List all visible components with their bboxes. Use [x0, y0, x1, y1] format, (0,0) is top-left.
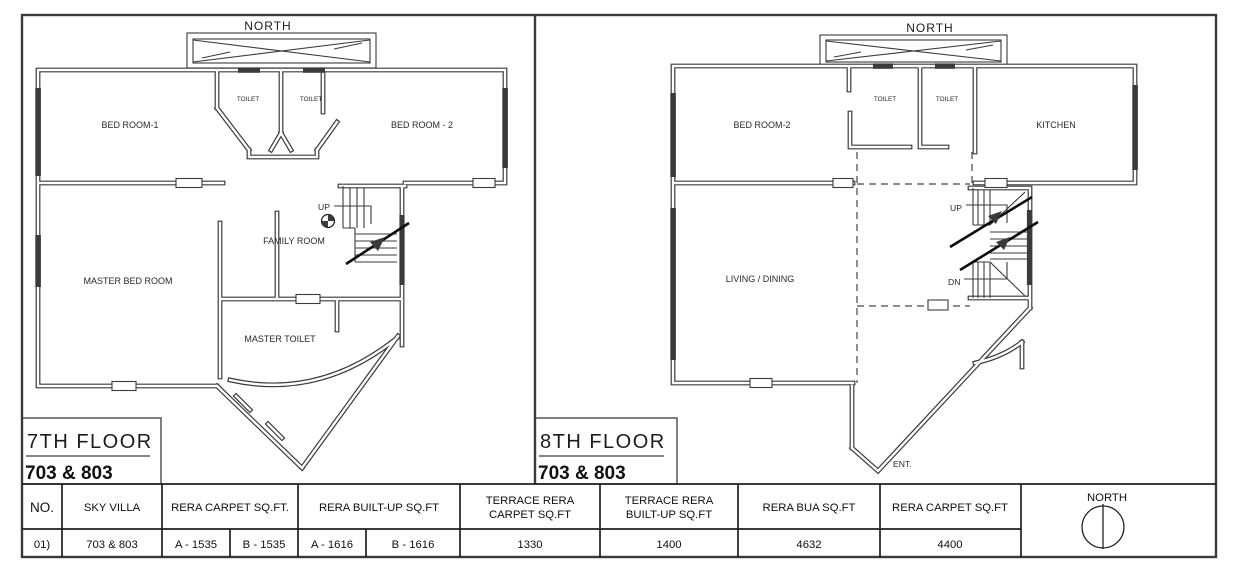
floor-plan-drawing: NORTH U	[0, 0, 1238, 587]
cell-terrace-carpet: 1330	[517, 539, 542, 551]
north-label-8th: NORTH	[906, 21, 953, 35]
col-header-no: NO.	[30, 500, 54, 515]
dn-label-8th: DN	[948, 277, 960, 287]
cell-rera-carpet-a: A - 1535	[175, 539, 217, 551]
up-label-8th: UP	[950, 203, 962, 213]
col-header-rera-carpet: RERA CARPET SQ.FT.	[171, 502, 289, 514]
room-label-kitchen: KITCHEN	[1036, 120, 1076, 130]
open-to-below-dashed	[857, 152, 972, 383]
terrace-box-7th	[187, 33, 376, 68]
windows-7th	[35, 67, 508, 287]
north-label-7th: NORTH	[244, 19, 291, 33]
up-label-7th: UP	[318, 202, 330, 212]
table-row: 01) 703 & 803 A - 1535 B - 1535 A - 1616…	[34, 539, 963, 551]
room-label-master-bedroom: MASTER BED ROOM	[83, 276, 172, 286]
room-label-toilet-right-7: TOILET	[300, 96, 322, 103]
floor-units-8th: 703 & 803	[538, 463, 626, 484]
room-label-living-dining: LIVING / DINING	[726, 274, 795, 284]
staircase-8th: UP DN	[948, 188, 1038, 298]
room-label-toilet-left-7: TOILET	[237, 96, 259, 103]
col-header-sky-villa: SKY VILLA	[84, 502, 141, 514]
cell-terrace-builtup: 1400	[656, 539, 681, 551]
cell-rera-carpet: 4400	[937, 539, 962, 551]
cell-sky-villa: 703 & 803	[86, 539, 138, 551]
cell-rera-builtup-a: A - 1616	[311, 539, 353, 551]
area-statement-table: NO. SKY VILLA RERA CARPET SQ.FT. RERA BU…	[22, 484, 1216, 557]
cell-rera-bua: 4632	[796, 539, 821, 551]
stair-arrowhead-7th	[370, 237, 385, 251]
cell-rera-builtup-b: B - 1616	[392, 539, 435, 551]
col-header-terrace-builtup-line2: BUILT-UP SQ.FT	[626, 509, 712, 521]
room-label-bedroom1: BED ROOM-1	[101, 120, 158, 130]
floor-plan-7th: NORTH U	[22, 19, 508, 484]
room-label-bedroom2-8th: BED ROOM-2	[733, 120, 790, 130]
floor-title-box-8th: 8TH FLOOR 703 & 803	[535, 418, 677, 484]
cell-no: 01)	[34, 539, 51, 551]
room-label-family-room: FAMILY ROOM	[263, 236, 325, 246]
terrace-box-8th	[820, 35, 1007, 67]
room-label-bedroom2-7th: BED ROOM - 2	[391, 120, 453, 130]
compass-north-label: NORTH	[1087, 492, 1127, 504]
floor-title-8th: 8TH FLOOR	[540, 431, 666, 453]
col-header-terrace-carpet-line1: TERRACE RERA	[486, 495, 575, 507]
col-header-terrace-carpet-line2: CARPET SQ.FT	[489, 509, 571, 521]
floor-plan-8th: NORTH	[535, 21, 1138, 484]
room-label-master-toilet: MASTER TOILET	[244, 334, 316, 344]
entrance-label: ENT.	[893, 459, 912, 469]
room-label-toilet-right-8: TOILET	[936, 96, 958, 103]
windows-8th	[670, 63, 1138, 360]
cell-rera-carpet-b: B - 1535	[243, 539, 286, 551]
col-header-rera-carpet2: RERA CARPET SQ.FT	[892, 502, 1008, 514]
col-header-rera-bua: RERA BUA SQ.FT	[763, 502, 856, 514]
floor-title-box-7th: 7TH FLOOR 703 & 803	[22, 418, 161, 484]
col-header-terrace-builtup-line1: TERRACE RERA	[625, 495, 714, 507]
room-label-toilet-left-8: TOILET	[874, 96, 896, 103]
floor-plan-sheet: NORTH U	[0, 0, 1238, 587]
floor-units-7th: 703 & 803	[25, 463, 113, 484]
level-marker-icon	[322, 215, 335, 228]
floor-title-7th: 7TH FLOOR	[27, 431, 153, 453]
north-compass: NORTH	[1082, 492, 1127, 549]
staircase-7th: UP	[318, 186, 409, 264]
col-header-rera-builtup: RERA BUILT-UP SQ.FT	[319, 502, 439, 514]
